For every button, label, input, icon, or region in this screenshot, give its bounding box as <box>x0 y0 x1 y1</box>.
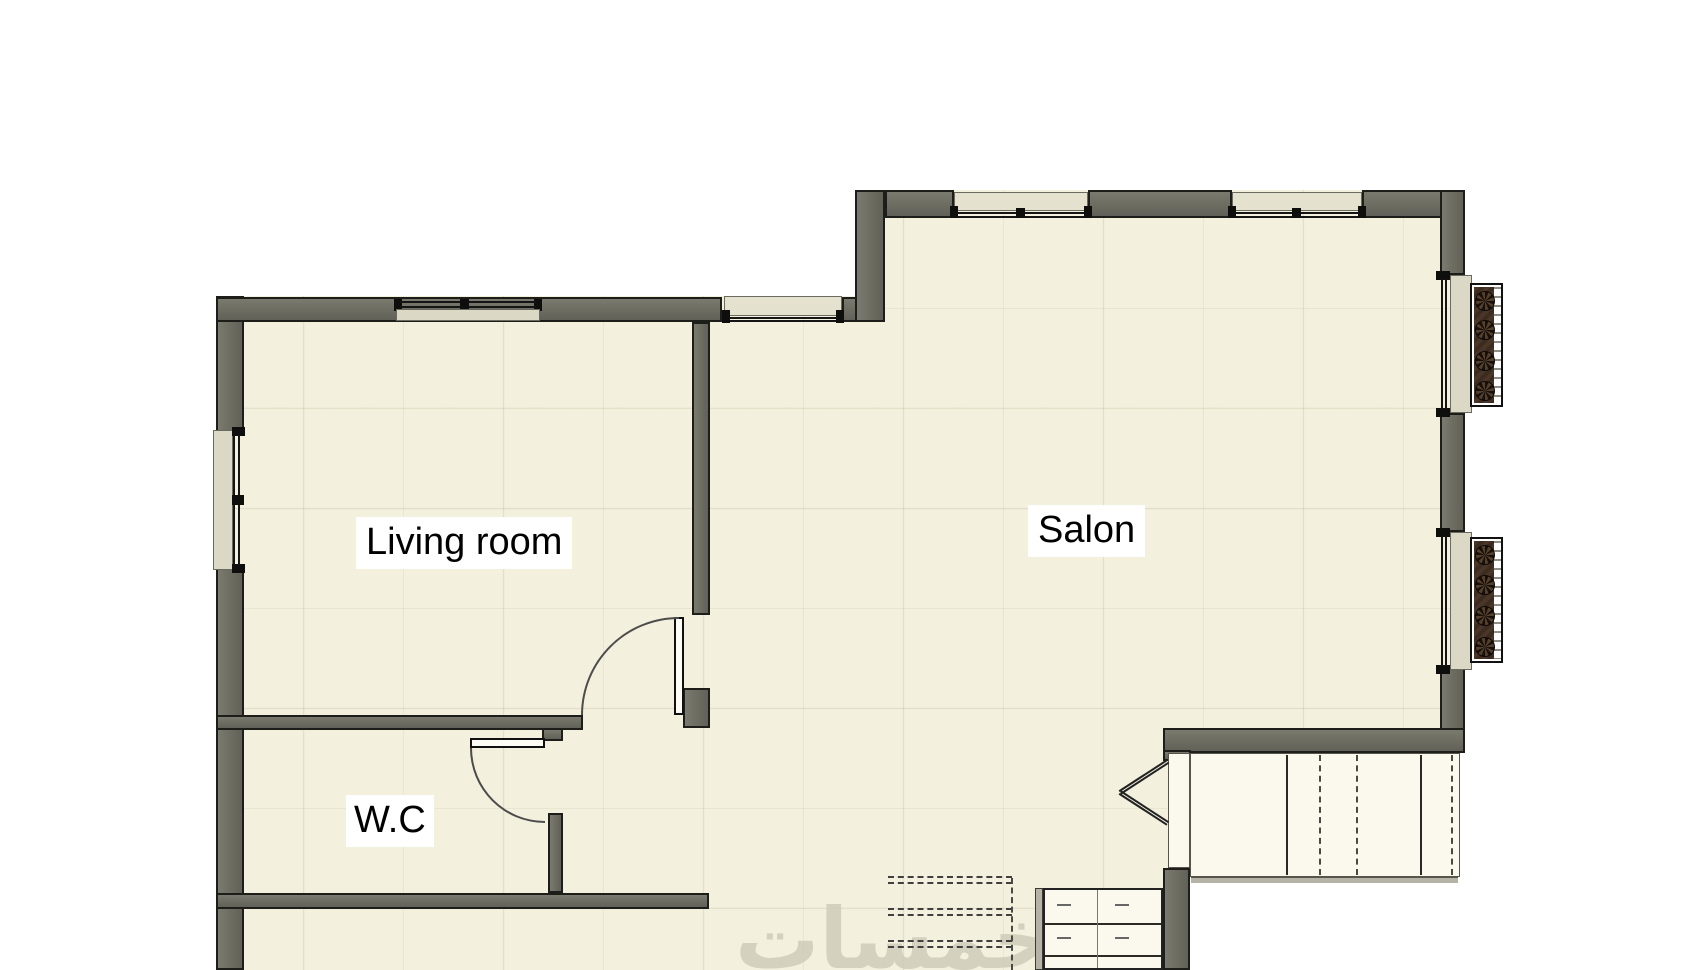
window-sill <box>213 430 233 570</box>
wall-left-lower <box>216 568 244 970</box>
radiator-unit-1 <box>1470 283 1503 407</box>
room-label-wc: W.C <box>346 795 434 847</box>
stair-tread-line <box>1420 755 1422 875</box>
window-glazing-line <box>1441 536 1443 666</box>
window-mullion <box>1016 208 1025 218</box>
fan-rosette-icon <box>1475 575 1495 595</box>
wall-stair-side <box>1163 868 1190 970</box>
wall-salon-top-a <box>885 190 954 218</box>
door-leaf-wc <box>470 738 545 748</box>
stair-dashed-line <box>1451 755 1453 875</box>
stair-tread-line <box>1286 755 1288 875</box>
stair-stringer <box>1035 888 1043 970</box>
fan-rosette-icon <box>1475 545 1495 565</box>
wall-wc-stub <box>548 813 563 893</box>
window-livingroom-top <box>394 297 542 322</box>
window-glazing-line <box>1441 279 1443 409</box>
window-sill <box>724 296 842 316</box>
wall-salon-left-step <box>855 190 885 322</box>
fan-rosette-icon <box>1475 351 1495 371</box>
fan-rosette-icon <box>1475 291 1495 311</box>
radiator-unit-2 <box>1470 537 1503 663</box>
wall-salon-top-b <box>1088 190 1232 218</box>
window-glazing-line <box>726 317 840 319</box>
fan-rosette-icon <box>1475 320 1495 340</box>
window-salon-right-1 <box>1432 271 1474 417</box>
wall-right-middle <box>1440 413 1465 532</box>
wall-livingroom-wc <box>216 715 583 730</box>
stair-tread-line <box>1045 923 1161 925</box>
window-cap-icon <box>1436 408 1450 417</box>
window-cap-icon <box>836 310 844 323</box>
stair-treads <box>1043 888 1163 970</box>
window-livingroom-left <box>211 427 247 573</box>
window-cap-icon <box>950 206 958 218</box>
window-glazing-line <box>1445 536 1447 666</box>
window-cap-icon <box>1436 665 1450 674</box>
window-mullion <box>1292 208 1301 218</box>
stair-tread-line <box>1045 955 1161 957</box>
window-glazing-line <box>1445 279 1447 409</box>
window-salon-right-2 <box>1432 528 1474 674</box>
dashed-rail <box>888 876 1012 884</box>
wall-divider-livingroom-salon <box>692 322 710 615</box>
stair-center-line <box>1097 890 1098 968</box>
window-cap-icon <box>1436 271 1450 280</box>
fan-rosette-icon <box>1475 606 1495 626</box>
fan-rosette-icon <box>1475 637 1495 657</box>
window-sill <box>396 309 540 321</box>
window-cap-icon <box>1436 528 1450 537</box>
stair-dashed-line <box>1319 755 1321 875</box>
fan-rosette-icon <box>1475 381 1495 401</box>
wall-wc-bottom <box>216 893 709 909</box>
stair-dash-mark <box>1115 937 1129 939</box>
wall-divider-stub <box>683 688 710 728</box>
window-salon-top-b <box>1228 190 1366 218</box>
wall-wc-door-tab <box>542 728 563 741</box>
window-passage <box>722 296 844 323</box>
room-label-salon: Salon <box>1028 505 1145 557</box>
stair-bottom-rail <box>1191 877 1458 883</box>
staircase-bottom <box>1035 888 1163 970</box>
radiator-fins-icon <box>1494 541 1501 659</box>
stair-landing-strip <box>1168 753 1190 868</box>
window-sill <box>1450 532 1472 670</box>
window-cap-icon <box>1358 206 1366 218</box>
dashed-rail <box>888 908 1012 916</box>
window-sill <box>1450 275 1472 413</box>
dashed-overhead-stair-outline <box>885 874 1017 970</box>
floor-plan-canvas: خمسات <box>0 0 1700 970</box>
dashed-rail-vertical <box>1011 878 1013 970</box>
window-cap-icon <box>232 564 245 573</box>
stair-dash-mark <box>1057 904 1071 906</box>
window-cap-icon <box>1228 206 1236 218</box>
window-salon-top-a <box>950 190 1092 218</box>
wall-right-upper <box>1440 190 1465 275</box>
dashed-rail <box>888 940 1012 948</box>
room-label-living-room: Living room <box>356 517 572 569</box>
window-cap-icon <box>722 310 730 323</box>
stair-dash-mark <box>1057 937 1071 939</box>
stair-dashed-line <box>1356 755 1358 875</box>
staircase-right <box>1168 753 1460 883</box>
radiator-fins-icon <box>1494 287 1501 403</box>
stair-dash-mark <box>1115 904 1129 906</box>
window-mullion <box>232 495 244 505</box>
wall-salon-bottom <box>1163 728 1465 753</box>
window-cap-icon <box>1084 206 1092 218</box>
window-glazing-line <box>726 320 840 322</box>
